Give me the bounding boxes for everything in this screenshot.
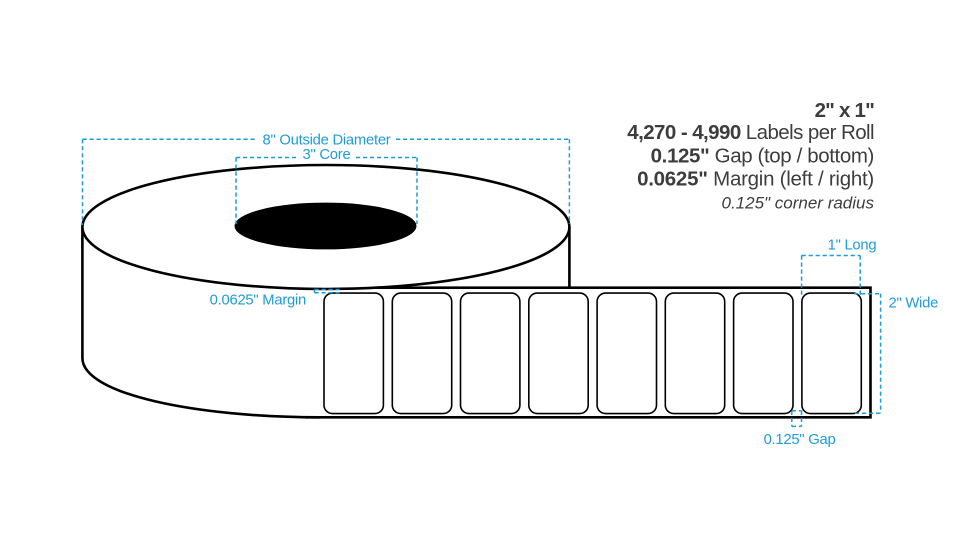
svg-text:2" x 1": 2" x 1" <box>815 99 875 122</box>
svg-text:0.0625" Margin (left / right): 0.0625" Margin (left / right) <box>637 168 874 191</box>
svg-text:2" Wide: 2" Wide <box>889 296 939 312</box>
svg-text:0.125" Gap: 0.125" Gap <box>764 432 836 448</box>
svg-text:3" Core: 3" Core <box>303 147 351 163</box>
svg-text:0.125" corner radius: 0.125" corner radius <box>721 194 874 213</box>
svg-text:4,270 - 4,990 Labels per Roll: 4,270 - 4,990 Labels per Roll <box>627 121 874 144</box>
svg-text:0.125" Gap (top / bottom): 0.125" Gap (top / bottom) <box>651 145 874 168</box>
svg-text:0.0625" Margin: 0.0625" Margin <box>210 292 306 308</box>
svg-text:1" Long: 1" Long <box>828 237 877 253</box>
